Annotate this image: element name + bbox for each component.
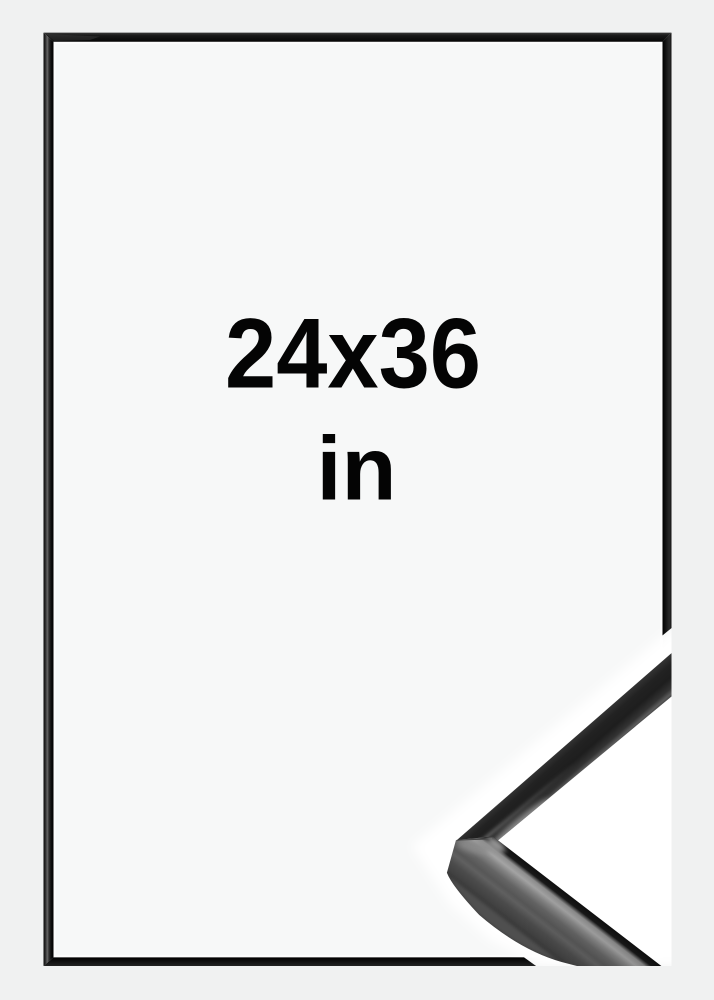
svg-text:24x36: 24x36 xyxy=(225,298,481,409)
svg-text:in: in xyxy=(317,420,397,520)
